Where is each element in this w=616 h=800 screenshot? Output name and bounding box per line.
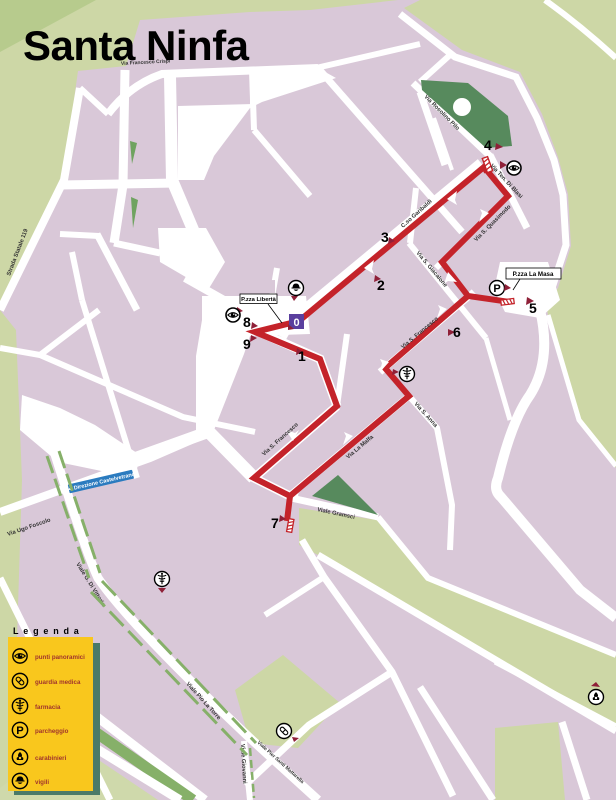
svg-text:Santa Ninfa: Santa Ninfa <box>23 22 250 69</box>
svg-text:Legenda: Legenda <box>13 626 84 636</box>
svg-text:guardia medica: guardia medica <box>35 679 81 686</box>
svg-text:7: 7 <box>271 515 279 531</box>
svg-text:9: 9 <box>243 336 251 352</box>
svg-text:1: 1 <box>298 348 306 364</box>
svg-text:5: 5 <box>529 300 537 316</box>
svg-text:0: 0 <box>293 317 299 329</box>
svg-text:P.zza La Masa: P.zza La Masa <box>513 271 554 278</box>
svg-text:P.zza Libertà: P.zza Libertà <box>241 297 276 303</box>
svg-text:punti panoramici: punti panoramici <box>35 654 85 661</box>
svg-text:parcheggio: parcheggio <box>35 728 69 735</box>
svg-text:4: 4 <box>484 137 492 153</box>
svg-text:3: 3 <box>381 229 389 245</box>
svg-text:farmacia: farmacia <box>35 704 61 711</box>
svg-text:6: 6 <box>453 324 461 340</box>
svg-text:8: 8 <box>243 314 251 330</box>
svg-text:carabinieri: carabinieri <box>35 755 67 762</box>
svg-text:vigili: vigili <box>35 779 49 786</box>
svg-text:P: P <box>16 725 24 737</box>
svg-text:2: 2 <box>377 277 385 293</box>
